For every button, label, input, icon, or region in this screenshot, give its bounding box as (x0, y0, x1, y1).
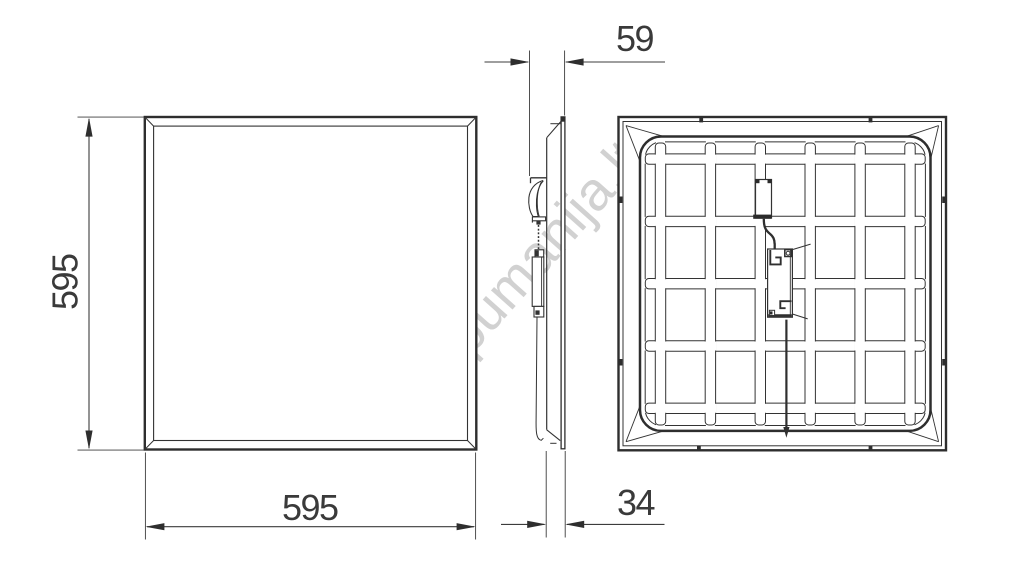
svg-text:34: 34 (617, 482, 655, 523)
svg-text:595: 595 (45, 254, 86, 310)
svg-text:595: 595 (282, 487, 338, 528)
svg-text:59: 59 (616, 18, 654, 59)
